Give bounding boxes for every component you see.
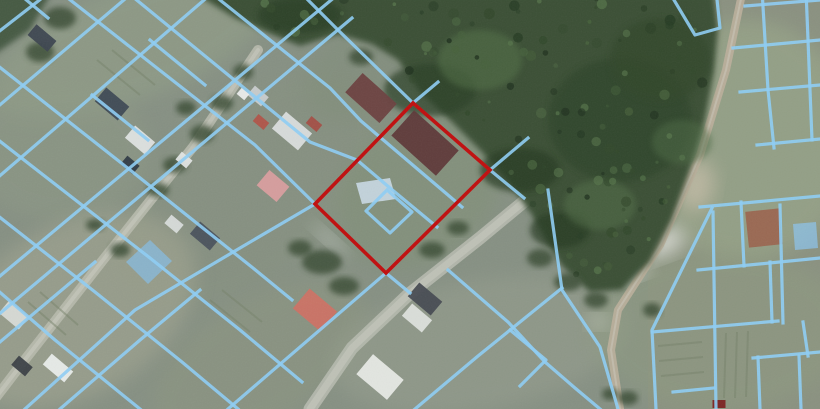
layer-grain [0,0,820,409]
photo-grain [0,0,820,409]
map-canvas [0,0,820,409]
cadastral-map-viewport[interactable] [0,0,820,409]
